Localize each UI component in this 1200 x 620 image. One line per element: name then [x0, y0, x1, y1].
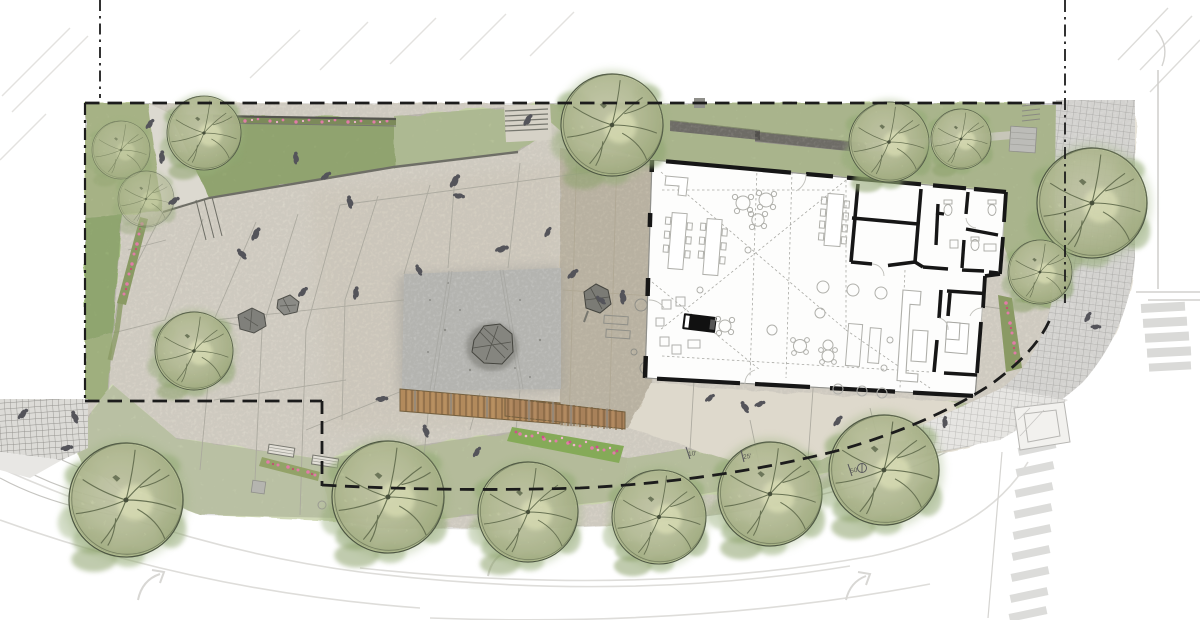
svg-text:25′: 25′ [743, 453, 753, 461]
svg-text:10′: 10′ [688, 450, 698, 458]
